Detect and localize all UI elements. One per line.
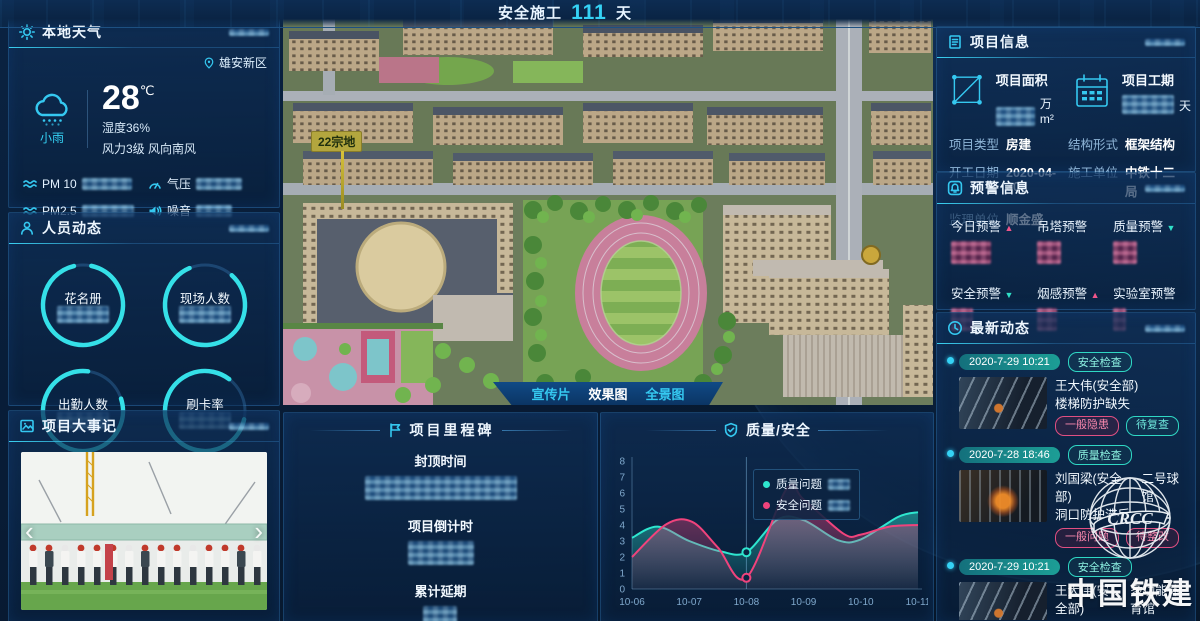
warning-item-0: 今日预警 ▲ bbox=[951, 216, 1029, 269]
warning-value-masked bbox=[1113, 241, 1137, 264]
events-title: 项目大事记 bbox=[42, 416, 117, 436]
status-tag: 待整改 bbox=[1126, 528, 1179, 548]
weather-condition: 小雨 bbox=[40, 129, 64, 146]
trend-up-icon: ▲ bbox=[1004, 223, 1013, 233]
header-decoration bbox=[1145, 39, 1185, 46]
person-icon bbox=[19, 220, 35, 236]
tooltip-quality-row: 质量问题 bbox=[763, 476, 850, 492]
news-date-badge: 2020-7-28 18:46 bbox=[959, 447, 1060, 463]
y-tick-label: 8 bbox=[619, 457, 625, 468]
chart-tooltip: 质量问题 安全问题 bbox=[753, 469, 860, 520]
header-decoration bbox=[1145, 185, 1185, 192]
location-badge: 雄安新区 bbox=[203, 54, 267, 71]
metric-pressure: 气压 bbox=[148, 175, 267, 192]
news-item-1[interactable]: 2020-7-28 18:46 质量检查 刘国梁(安全部) 二号球馆 洞口防护滞… bbox=[947, 445, 1185, 547]
warning-item-1: 吊塔预警 bbox=[1037, 216, 1105, 269]
status-tag: 一般问题 bbox=[1055, 528, 1119, 548]
trend-down-icon: ▼ bbox=[1004, 290, 1013, 300]
tooltip-value-masked bbox=[828, 500, 850, 511]
news-type-badge: 安全检查 bbox=[1068, 557, 1132, 577]
rain-cloud-icon bbox=[31, 93, 73, 127]
header-decoration bbox=[1145, 325, 1185, 332]
tab-render-view[interactable]: 效果图 bbox=[588, 384, 627, 403]
warning-label: 安全预警 ▼ bbox=[951, 283, 1029, 302]
news-panel: 最新动态 2020-7-29 10:21 安全检查 王大伟(安全部) 楼梯防护缺… bbox=[936, 312, 1196, 621]
plot-label-pole bbox=[341, 151, 344, 209]
x-tick-label: 10-07 bbox=[676, 597, 702, 608]
humidity-text: 湿度36% bbox=[102, 119, 196, 136]
area-icon bbox=[949, 70, 987, 114]
news-person: 王大伟(安全部) bbox=[1055, 377, 1138, 395]
marker-dot bbox=[742, 574, 750, 582]
ring-label: 花名册 bbox=[36, 288, 130, 307]
personnel-ring-0: 花名册 bbox=[36, 258, 130, 352]
stat-unit: 万m² bbox=[1040, 95, 1063, 126]
divider bbox=[87, 90, 88, 148]
safety-dot bbox=[763, 502, 770, 509]
news-list: 2020-7-29 10:21 安全检查 王大伟(安全部) 楼梯防护缺失 一般隐… bbox=[937, 344, 1195, 620]
y-tick-label: 2 bbox=[619, 553, 625, 564]
location-label: 雄安新区 bbox=[219, 54, 267, 71]
news-issue: 楼梯防护缺失 bbox=[1055, 395, 1179, 413]
tab-promo-video[interactable]: 宣传片 bbox=[531, 384, 570, 403]
warnings-panel: 预警信息 今日预警 ▲ 吊塔预警 质量预警 ▼ 安全预警 ▼ 烟感预警 ▲ 实验… bbox=[936, 172, 1196, 310]
header-decoration bbox=[229, 423, 269, 430]
wind-text: 风力3级 风向南风 bbox=[102, 140, 196, 157]
news-place: 多功能体育馆 bbox=[1130, 582, 1185, 618]
y-tick-label: 7 bbox=[619, 473, 625, 484]
milestone-delay: 累计延期 bbox=[414, 581, 466, 621]
carousel-prev-button[interactable]: ‹ bbox=[25, 518, 34, 544]
shield-check-icon bbox=[723, 422, 739, 438]
metric-value-masked bbox=[196, 178, 242, 190]
stat-project-duration: 项目工期 天 bbox=[1071, 70, 1191, 126]
dashboard-root: 22宗地 宣传片 效果图 全景图 安全施工 111 天 本地天气 bbox=[0, 0, 1200, 621]
x-tick-label: 10-10 bbox=[848, 597, 874, 608]
warning-label: 吊塔预警 bbox=[1037, 216, 1105, 235]
milestone-panel: 项目里程碑 封顶时间 项目倒计时 累计延期 bbox=[283, 412, 598, 621]
news-issue: 楼梯防护缺失 bbox=[1055, 618, 1185, 620]
metric-label: PM 10 bbox=[42, 177, 77, 191]
metric-pm10: PM 10 bbox=[23, 175, 142, 192]
site-render-image bbox=[283, 5, 933, 405]
tab-panorama[interactable]: 全景图 bbox=[646, 384, 685, 403]
inspection-photo bbox=[959, 582, 1047, 621]
warning-value-masked bbox=[1037, 241, 1061, 264]
stat-project-area: 项目面积 万m² bbox=[949, 70, 1063, 126]
site-render-3d: 22宗地 宣传片 效果图 全景图 bbox=[283, 5, 933, 405]
personnel-title: 人员动态 bbox=[42, 218, 102, 238]
y-tick-label: 0 bbox=[619, 585, 625, 596]
x-tick-label: 10-06 bbox=[619, 597, 645, 608]
stat-label: 项目工期 bbox=[1122, 70, 1191, 89]
ring-value-masked bbox=[57, 306, 109, 323]
milestone-value-masked bbox=[365, 476, 517, 500]
events-panel: 项目大事记 ‹ › bbox=[8, 410, 280, 621]
gauge-icon bbox=[148, 178, 162, 190]
news-title: 最新动态 bbox=[970, 318, 1030, 338]
warning-label: 实验室预警 bbox=[1113, 283, 1181, 302]
document-icon bbox=[947, 34, 963, 50]
personnel-ring-1: 现场人数 bbox=[158, 258, 252, 352]
stat-value-masked bbox=[1122, 95, 1174, 114]
milestone-value-masked bbox=[408, 541, 474, 565]
milestone-value-masked bbox=[423, 606, 457, 621]
quality-safety-panel: 质量/安全 01234567810-0610-0710-0810-0910-10… bbox=[600, 412, 934, 621]
y-tick-label: 3 bbox=[619, 537, 625, 548]
milestone-countdown: 项目倒计时 bbox=[408, 516, 474, 570]
safe-days-prefix: 安全施工 bbox=[498, 5, 562, 22]
news-person: 刘国梁(安全部) bbox=[1055, 470, 1127, 506]
tooltip-safety-label: 安全问题 bbox=[776, 497, 822, 513]
warning-value-masked bbox=[951, 241, 991, 264]
status-tag: 一般隐患 bbox=[1055, 416, 1119, 436]
calendar-icon bbox=[1071, 70, 1113, 114]
tooltip-safety-row: 安全问题 bbox=[763, 497, 850, 513]
temperature-value: 28 bbox=[102, 79, 140, 117]
project-info-title: 项目信息 bbox=[970, 32, 1030, 52]
news-person: 王大伟(安全部) bbox=[1055, 582, 1116, 618]
news-type-badge: 安全检查 bbox=[1068, 352, 1132, 372]
top-banner: 安全施工 111 天 bbox=[0, 0, 1200, 28]
warning-item-2: 质量预警 ▼ bbox=[1113, 216, 1181, 269]
trend-down-icon: ▼ bbox=[1167, 223, 1176, 233]
marker-dot bbox=[742, 548, 750, 556]
news-issue: 洞口防护滞后 bbox=[1055, 506, 1185, 524]
y-tick-label: 1 bbox=[619, 569, 625, 580]
field-structure: 结构形式框架结构 bbox=[1068, 134, 1183, 153]
news-place: 二号球馆 bbox=[1141, 470, 1185, 506]
x-tick-label: 10-11 bbox=[906, 597, 928, 608]
y-tick-label: 5 bbox=[619, 505, 625, 516]
plot-label: 22宗地 bbox=[311, 131, 362, 152]
metric-value-masked bbox=[82, 178, 132, 190]
y-tick-label: 4 bbox=[619, 521, 625, 532]
stat-value-masked bbox=[996, 107, 1035, 126]
project-info-panel: 项目信息 项目面积 万m² 项目工期 bbox=[936, 26, 1196, 172]
milestone-topping-time: 封顶时间 bbox=[365, 451, 517, 505]
scene-view-tabs: 宣传片 效果图 全景图 bbox=[493, 382, 723, 405]
clock-icon bbox=[947, 320, 963, 336]
flag-icon bbox=[387, 422, 403, 438]
inspection-photo bbox=[959, 470, 1047, 522]
location-pin-icon bbox=[203, 57, 215, 69]
safe-days-suffix: 天 bbox=[616, 5, 632, 22]
stat-label: 项目面积 bbox=[996, 70, 1063, 89]
ring-label: 现场人数 bbox=[158, 288, 252, 307]
warning-label: 烟感预警 ▲ bbox=[1037, 283, 1105, 302]
personnel-panel: 人员动态 花名册 现场人数 出勤人数 刷卡率 bbox=[8, 212, 280, 406]
alarm-bell-icon bbox=[947, 180, 963, 196]
x-tick-label: 10-09 bbox=[791, 597, 817, 608]
warnings-title: 预警信息 bbox=[970, 178, 1030, 198]
news-date-badge: 2020-7-29 10:21 bbox=[959, 559, 1060, 575]
temperature-unit: ℃ bbox=[140, 83, 155, 98]
event-photo-carousel: ‹ › bbox=[21, 452, 267, 610]
quality-dot bbox=[763, 481, 770, 488]
smog-icon bbox=[23, 178, 37, 190]
trend-up-icon: ▲ bbox=[1091, 290, 1100, 300]
weather-panel: 本地天气 雄安新区 小雨 28℃ 湿度36% 风力3级 风向南风 bbox=[8, 16, 280, 208]
stat-unit: 天 bbox=[1179, 97, 1191, 114]
y-tick-label: 6 bbox=[619, 489, 625, 500]
safe-days-count: 111 bbox=[571, 1, 607, 24]
carousel-next-button[interactable]: › bbox=[254, 518, 263, 544]
tooltip-value-masked bbox=[828, 479, 850, 490]
event-photo bbox=[21, 452, 267, 610]
inspection-photo bbox=[959, 377, 1047, 429]
warning-label: 今日预警 ▲ bbox=[951, 216, 1029, 235]
header-decoration bbox=[229, 29, 269, 36]
news-item-2[interactable]: 2020-7-29 10:21 安全检查 王大伟(安全部) 多功能体育馆 楼梯防… bbox=[947, 557, 1185, 621]
warning-label: 质量预警 ▼ bbox=[1113, 216, 1181, 235]
news-item-0[interactable]: 2020-7-29 10:21 安全检查 王大伟(安全部) 楼梯防护缺失 一般隐… bbox=[947, 352, 1185, 436]
news-type-badge: 质量检查 bbox=[1068, 445, 1132, 465]
milestone-title: 项目里程碑 bbox=[410, 420, 495, 440]
chart-title: 质量/安全 bbox=[746, 420, 811, 440]
status-tag: 待复查 bbox=[1126, 416, 1179, 436]
metric-label: 气压 bbox=[167, 175, 191, 192]
tooltip-quality-label: 质量问题 bbox=[776, 476, 822, 492]
photo-icon bbox=[19, 418, 35, 434]
x-tick-label: 10-08 bbox=[734, 597, 760, 608]
field-project-type: 项目类型房建 bbox=[949, 134, 1064, 153]
news-date-badge: 2020-7-29 10:21 bbox=[959, 354, 1060, 370]
header-decoration bbox=[229, 225, 269, 232]
ring-value-masked bbox=[179, 306, 231, 323]
